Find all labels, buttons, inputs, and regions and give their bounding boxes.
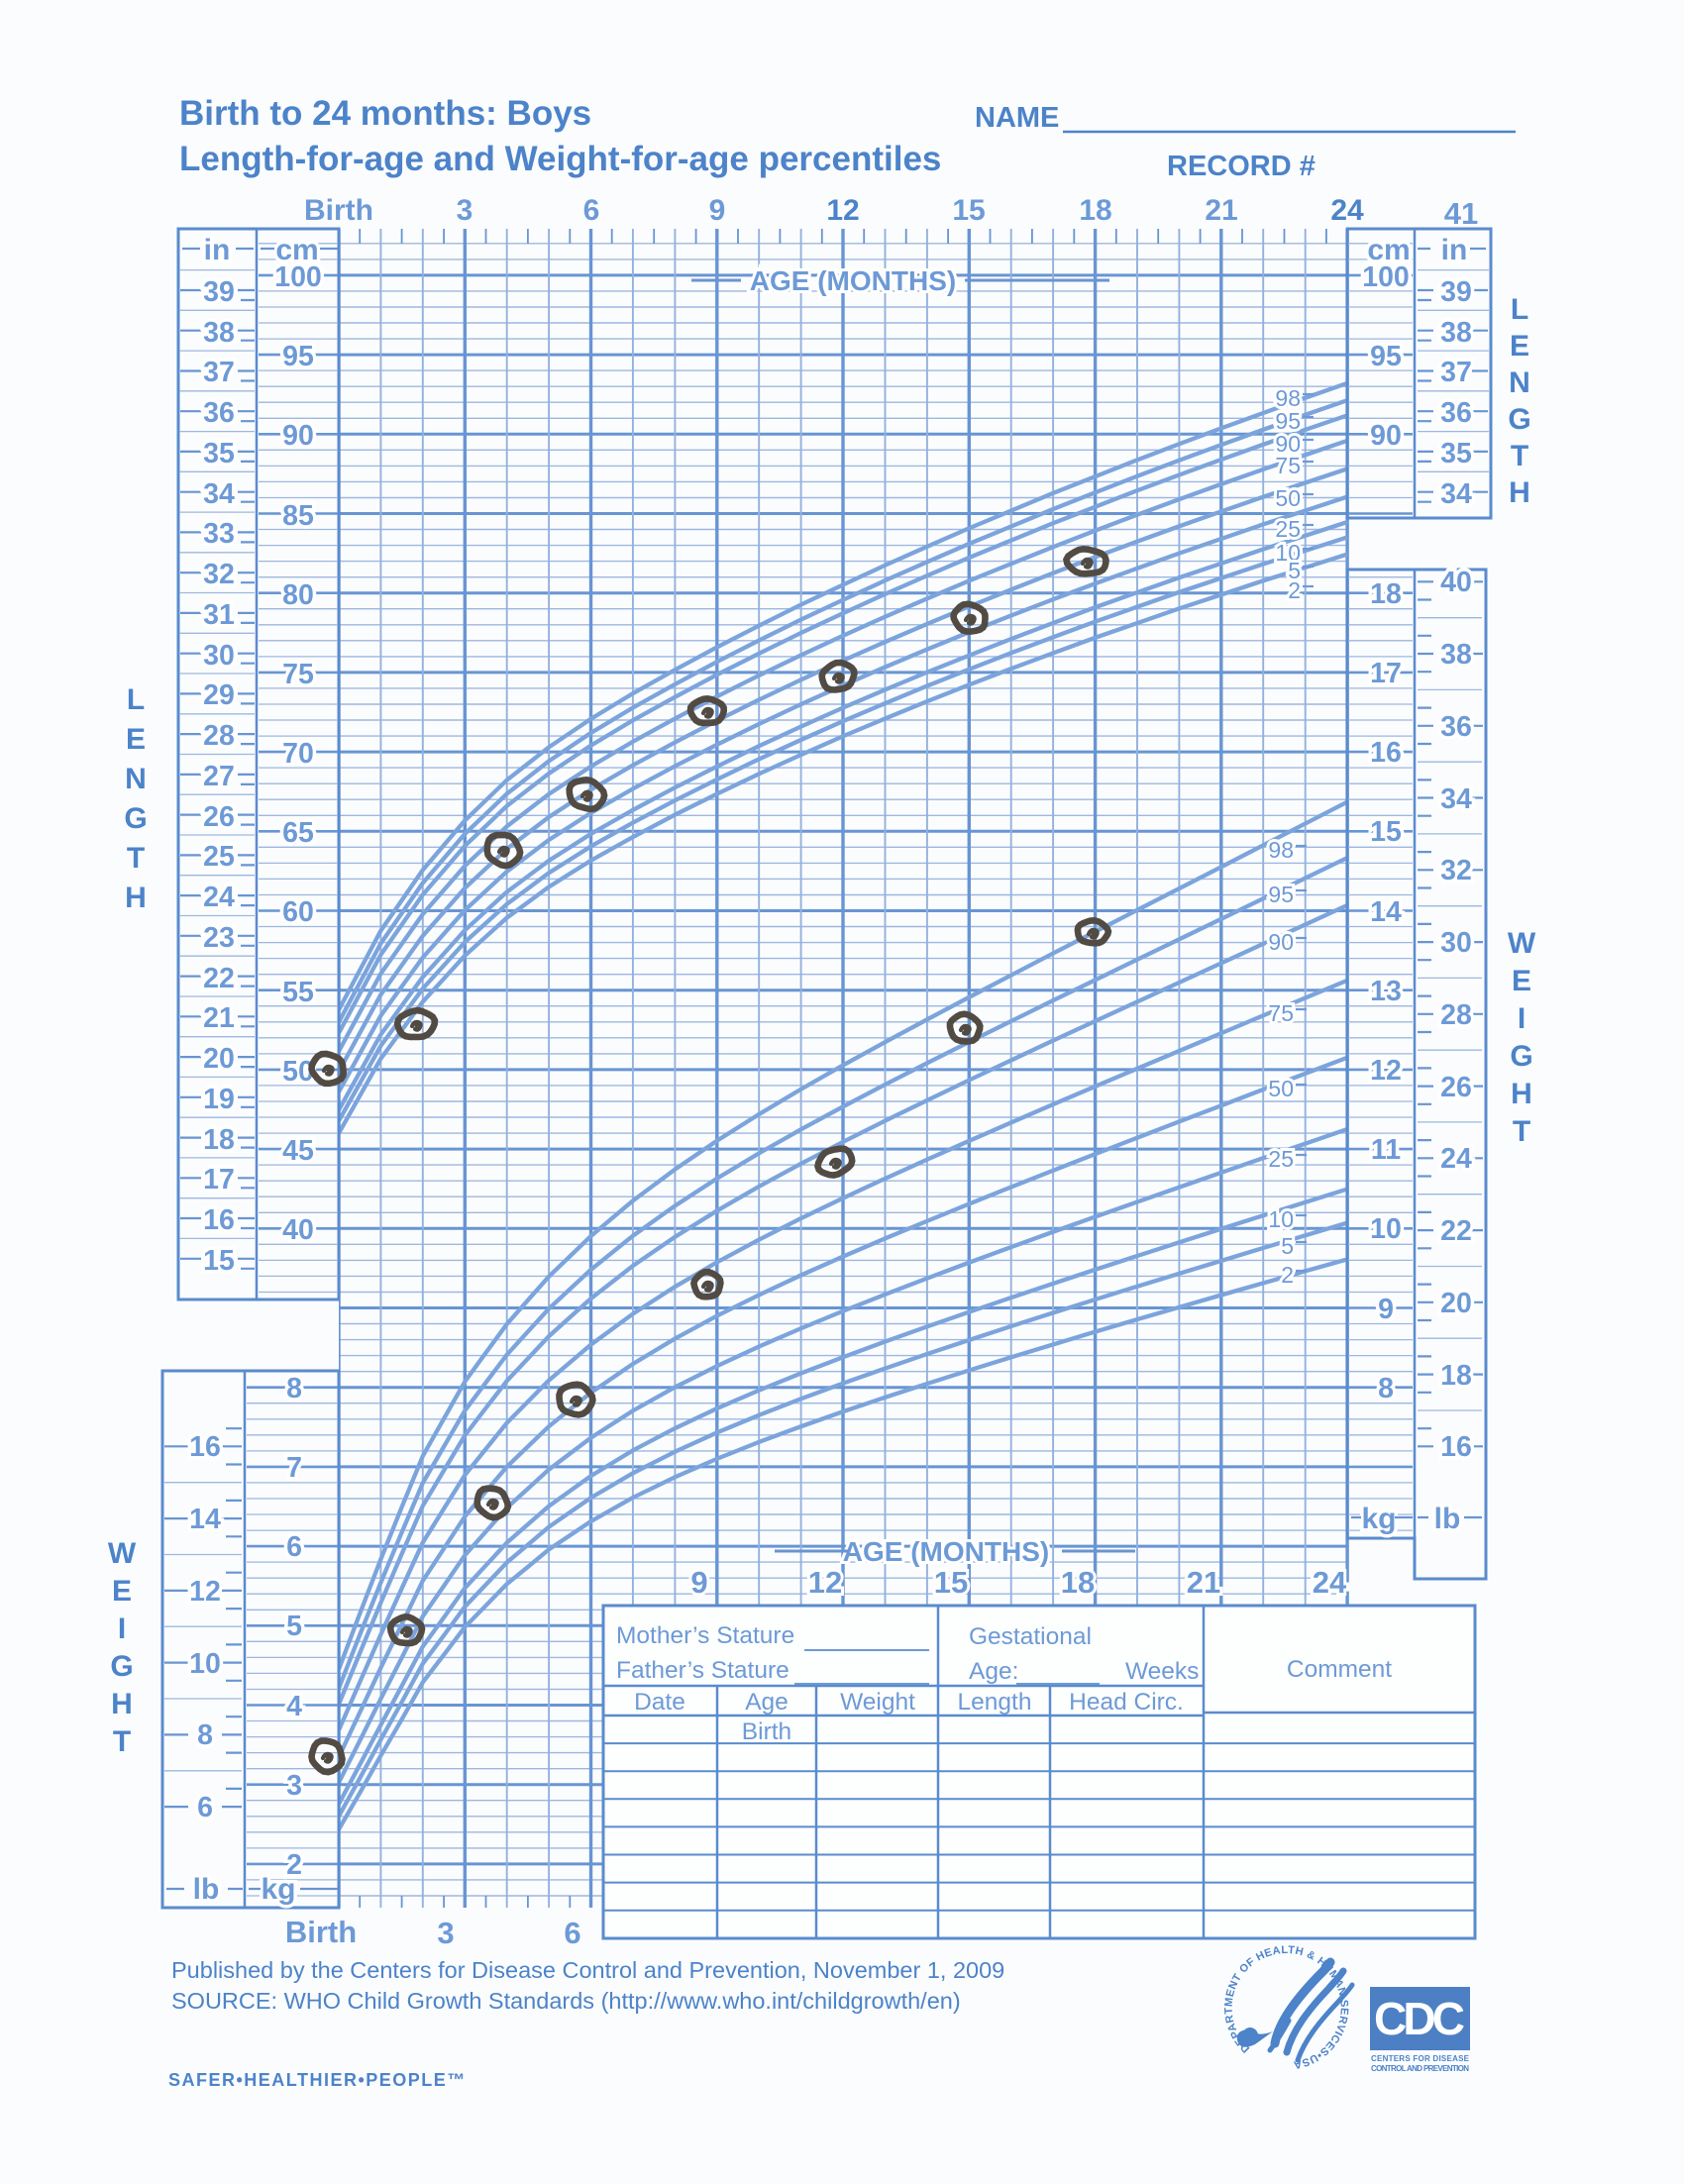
svg-text:NAME: NAME bbox=[975, 102, 1059, 134]
svg-text:38: 38 bbox=[1440, 639, 1472, 671]
svg-text:Weight: Weight bbox=[840, 1689, 915, 1716]
svg-text:Birth to 24 months: Boys: Birth to 24 months: Boys bbox=[179, 94, 591, 133]
svg-text:T: T bbox=[1511, 440, 1528, 472]
svg-text:12: 12 bbox=[189, 1576, 221, 1608]
svg-text:34: 34 bbox=[203, 478, 235, 510]
svg-text:cm: cm bbox=[1367, 234, 1410, 266]
svg-text:lb: lb bbox=[193, 1873, 220, 1906]
svg-text:50: 50 bbox=[1275, 485, 1301, 511]
svg-text:E: E bbox=[126, 723, 146, 756]
svg-text:41: 41 bbox=[1444, 196, 1478, 231]
svg-text:28: 28 bbox=[203, 720, 235, 752]
svg-text:kg: kg bbox=[1361, 1503, 1396, 1535]
svg-text:Head Circ.: Head Circ. bbox=[1069, 1689, 1184, 1716]
svg-text:G: G bbox=[1510, 1040, 1532, 1073]
svg-text:21: 21 bbox=[1187, 1565, 1220, 1600]
svg-text:19: 19 bbox=[203, 1084, 235, 1115]
svg-text:10: 10 bbox=[1268, 1206, 1294, 1232]
svg-text:5: 5 bbox=[286, 1611, 302, 1642]
svg-text:80: 80 bbox=[282, 579, 314, 611]
svg-text:21: 21 bbox=[1205, 194, 1237, 227]
svg-text:8: 8 bbox=[1378, 1373, 1394, 1404]
svg-text:Comment: Comment bbox=[1287, 1656, 1392, 1683]
svg-text:25: 25 bbox=[203, 841, 235, 873]
svg-text:Birth: Birth bbox=[285, 1915, 357, 1949]
svg-text:I: I bbox=[1518, 1002, 1526, 1035]
svg-text:T: T bbox=[127, 842, 145, 875]
svg-text:39: 39 bbox=[1440, 276, 1472, 308]
svg-text:33: 33 bbox=[203, 518, 235, 550]
svg-text:L: L bbox=[127, 683, 145, 716]
svg-text:Weeks: Weeks bbox=[1125, 1658, 1199, 1685]
svg-text:Age: Age bbox=[745, 1689, 789, 1716]
svg-text:15: 15 bbox=[934, 1565, 968, 1600]
svg-text:28: 28 bbox=[1440, 999, 1472, 1031]
svg-text:13: 13 bbox=[1370, 976, 1402, 1007]
svg-text:AGE (MONTHS): AGE (MONTHS) bbox=[843, 1536, 1049, 1567]
svg-text:H: H bbox=[1511, 1078, 1532, 1110]
svg-text:16: 16 bbox=[1440, 1431, 1472, 1463]
svg-text:35: 35 bbox=[203, 438, 235, 469]
svg-text:16: 16 bbox=[203, 1204, 235, 1236]
svg-text:40: 40 bbox=[282, 1214, 314, 1246]
svg-text:G: G bbox=[110, 1650, 133, 1683]
svg-text:12: 12 bbox=[808, 1565, 842, 1600]
svg-text:85: 85 bbox=[282, 500, 314, 532]
svg-text:T: T bbox=[113, 1725, 131, 1758]
svg-text:36: 36 bbox=[1440, 711, 1472, 743]
svg-text:37: 37 bbox=[1440, 357, 1472, 388]
svg-text:39: 39 bbox=[203, 276, 235, 308]
svg-text:Length-for-age and Weight-for-: Length-for-age and Weight-for-age percen… bbox=[179, 140, 941, 178]
svg-text:T: T bbox=[1513, 1115, 1530, 1148]
svg-text:50: 50 bbox=[1268, 1076, 1294, 1101]
svg-text:25: 25 bbox=[1275, 516, 1301, 542]
svg-text:Birth: Birth bbox=[304, 194, 373, 227]
svg-text:95: 95 bbox=[282, 341, 314, 372]
svg-text:H: H bbox=[125, 882, 147, 914]
svg-text:RECORD #: RECORD # bbox=[1167, 151, 1316, 182]
svg-text:2: 2 bbox=[1281, 1262, 1294, 1288]
svg-text:N: N bbox=[125, 763, 147, 795]
svg-text:16: 16 bbox=[189, 1431, 221, 1463]
svg-text:26: 26 bbox=[203, 801, 235, 833]
svg-text:17: 17 bbox=[203, 1164, 235, 1196]
svg-text:17: 17 bbox=[1370, 658, 1402, 689]
svg-text:60: 60 bbox=[282, 896, 314, 928]
svg-text:24: 24 bbox=[1313, 1565, 1347, 1600]
svg-text:36: 36 bbox=[1440, 397, 1472, 429]
svg-text:lb: lb bbox=[1434, 1503, 1461, 1535]
svg-text:20: 20 bbox=[203, 1043, 235, 1075]
svg-text:75: 75 bbox=[1275, 453, 1301, 478]
svg-text:22: 22 bbox=[203, 963, 235, 994]
svg-text:14: 14 bbox=[1370, 896, 1402, 928]
svg-text:18: 18 bbox=[1440, 1360, 1472, 1392]
svg-text:Gestational: Gestational bbox=[969, 1623, 1092, 1650]
svg-text:E: E bbox=[1512, 965, 1531, 997]
svg-text:SAFER•HEALTHIER•PEOPLE™: SAFER•HEALTHIER•PEOPLE™ bbox=[168, 2070, 467, 2090]
svg-text:90: 90 bbox=[1268, 929, 1294, 955]
svg-text:9: 9 bbox=[690, 1565, 707, 1600]
svg-text:37: 37 bbox=[203, 357, 235, 388]
svg-text:6: 6 bbox=[197, 1792, 213, 1823]
svg-text:7: 7 bbox=[286, 1452, 302, 1484]
svg-text:34: 34 bbox=[1440, 478, 1472, 510]
svg-text:36: 36 bbox=[203, 397, 235, 429]
svg-text:65: 65 bbox=[282, 817, 314, 849]
svg-text:3: 3 bbox=[286, 1770, 302, 1802]
svg-text:29: 29 bbox=[203, 679, 235, 711]
svg-text:2: 2 bbox=[1288, 577, 1301, 603]
svg-text:Published by the Centers for D: Published by the Centers for Disease Con… bbox=[171, 1957, 1004, 1983]
svg-text:24: 24 bbox=[1330, 194, 1364, 227]
svg-text:8: 8 bbox=[286, 1373, 302, 1404]
svg-text:40: 40 bbox=[1440, 567, 1472, 598]
svg-text:Mother’s Stature: Mother’s Stature bbox=[616, 1622, 794, 1649]
svg-text:8: 8 bbox=[197, 1719, 213, 1751]
svg-text:G: G bbox=[1508, 403, 1530, 436]
svg-text:W: W bbox=[1508, 927, 1536, 960]
svg-text:30: 30 bbox=[1440, 927, 1472, 959]
svg-text:SOURCE: WHO Child Growth Stan: SOURCE: WHO Child Growth Standards (http… bbox=[171, 1988, 961, 2014]
svg-text:CDC: CDC bbox=[1374, 1993, 1465, 2044]
svg-text:75: 75 bbox=[1268, 1000, 1294, 1026]
svg-text:27: 27 bbox=[203, 761, 235, 792]
svg-text:6: 6 bbox=[583, 194, 600, 227]
svg-text:70: 70 bbox=[282, 738, 314, 770]
svg-text:38: 38 bbox=[203, 317, 235, 349]
svg-text:38: 38 bbox=[1440, 317, 1472, 349]
svg-text:Birth: Birth bbox=[742, 1718, 791, 1745]
svg-text:9: 9 bbox=[709, 194, 726, 227]
svg-text:25: 25 bbox=[1268, 1146, 1294, 1172]
svg-text:18: 18 bbox=[203, 1124, 235, 1156]
svg-text:CONTROL AND PREVENTION: CONTROL AND PREVENTION bbox=[1371, 2064, 1469, 2073]
svg-text:15: 15 bbox=[1370, 816, 1402, 848]
svg-text:98: 98 bbox=[1268, 837, 1294, 863]
svg-text:cm: cm bbox=[275, 234, 318, 266]
svg-text:AGE (MONTHS): AGE (MONTHS) bbox=[750, 265, 956, 296]
svg-text:4: 4 bbox=[286, 1691, 302, 1722]
svg-text:H: H bbox=[1509, 476, 1530, 509]
svg-text:75: 75 bbox=[282, 659, 314, 690]
svg-text:W: W bbox=[108, 1537, 137, 1570]
svg-text:30: 30 bbox=[203, 640, 235, 672]
svg-text:E: E bbox=[1510, 330, 1529, 363]
svg-text:32: 32 bbox=[203, 559, 235, 590]
svg-text:10: 10 bbox=[189, 1648, 221, 1680]
svg-text:95: 95 bbox=[1370, 341, 1402, 372]
svg-text:24: 24 bbox=[203, 882, 235, 913]
svg-text:9: 9 bbox=[1378, 1294, 1394, 1325]
svg-text:32: 32 bbox=[1440, 855, 1472, 886]
svg-text:6: 6 bbox=[286, 1531, 302, 1563]
svg-text:3: 3 bbox=[437, 1916, 454, 1950]
svg-text:5: 5 bbox=[1281, 1233, 1294, 1259]
svg-text:31: 31 bbox=[203, 599, 235, 631]
svg-text:18: 18 bbox=[1370, 578, 1402, 610]
svg-text:E: E bbox=[112, 1575, 132, 1608]
svg-text:L: L bbox=[1511, 293, 1528, 326]
svg-text:16: 16 bbox=[1370, 737, 1402, 769]
svg-text:G: G bbox=[124, 802, 147, 835]
svg-text:Length: Length bbox=[958, 1689, 1032, 1716]
svg-text:CENTERS FOR DISEASE: CENTERS FOR DISEASE bbox=[1371, 2054, 1470, 2063]
svg-text:15: 15 bbox=[203, 1245, 235, 1277]
svg-text:N: N bbox=[1509, 366, 1530, 399]
svg-text:H: H bbox=[111, 1688, 133, 1720]
svg-text:26: 26 bbox=[1440, 1072, 1472, 1103]
svg-text:21: 21 bbox=[203, 1002, 235, 1034]
svg-text:34: 34 bbox=[1440, 783, 1472, 815]
svg-text:11: 11 bbox=[1371, 1134, 1401, 1166]
svg-text:in: in bbox=[204, 234, 231, 266]
svg-text:35: 35 bbox=[1440, 438, 1472, 469]
svg-text:20: 20 bbox=[1440, 1288, 1472, 1319]
svg-text:12: 12 bbox=[1370, 1055, 1402, 1087]
svg-text:12: 12 bbox=[826, 194, 859, 227]
svg-text:15: 15 bbox=[952, 194, 985, 227]
svg-text:3: 3 bbox=[457, 194, 474, 227]
svg-text:6: 6 bbox=[564, 1916, 580, 1950]
svg-text:Father’s Stature: Father’s Stature bbox=[616, 1657, 789, 1684]
svg-text:90: 90 bbox=[282, 420, 314, 452]
svg-text:22: 22 bbox=[1440, 1215, 1472, 1247]
svg-text:90: 90 bbox=[1370, 420, 1402, 452]
svg-text:55: 55 bbox=[282, 977, 314, 1008]
svg-text:I: I bbox=[118, 1612, 126, 1645]
svg-text:95: 95 bbox=[1268, 882, 1294, 907]
svg-text:45: 45 bbox=[282, 1135, 314, 1167]
svg-text:24: 24 bbox=[1440, 1143, 1472, 1175]
svg-text:kg: kg bbox=[261, 1873, 295, 1906]
svg-text:Age:: Age: bbox=[969, 1658, 1018, 1685]
svg-text:14: 14 bbox=[189, 1504, 221, 1535]
svg-text:18: 18 bbox=[1061, 1565, 1095, 1600]
svg-text:10: 10 bbox=[1370, 1213, 1402, 1245]
svg-text:Date: Date bbox=[634, 1689, 685, 1716]
svg-text:23: 23 bbox=[203, 922, 235, 954]
svg-text:in: in bbox=[1441, 234, 1468, 266]
svg-text:18: 18 bbox=[1079, 194, 1111, 227]
